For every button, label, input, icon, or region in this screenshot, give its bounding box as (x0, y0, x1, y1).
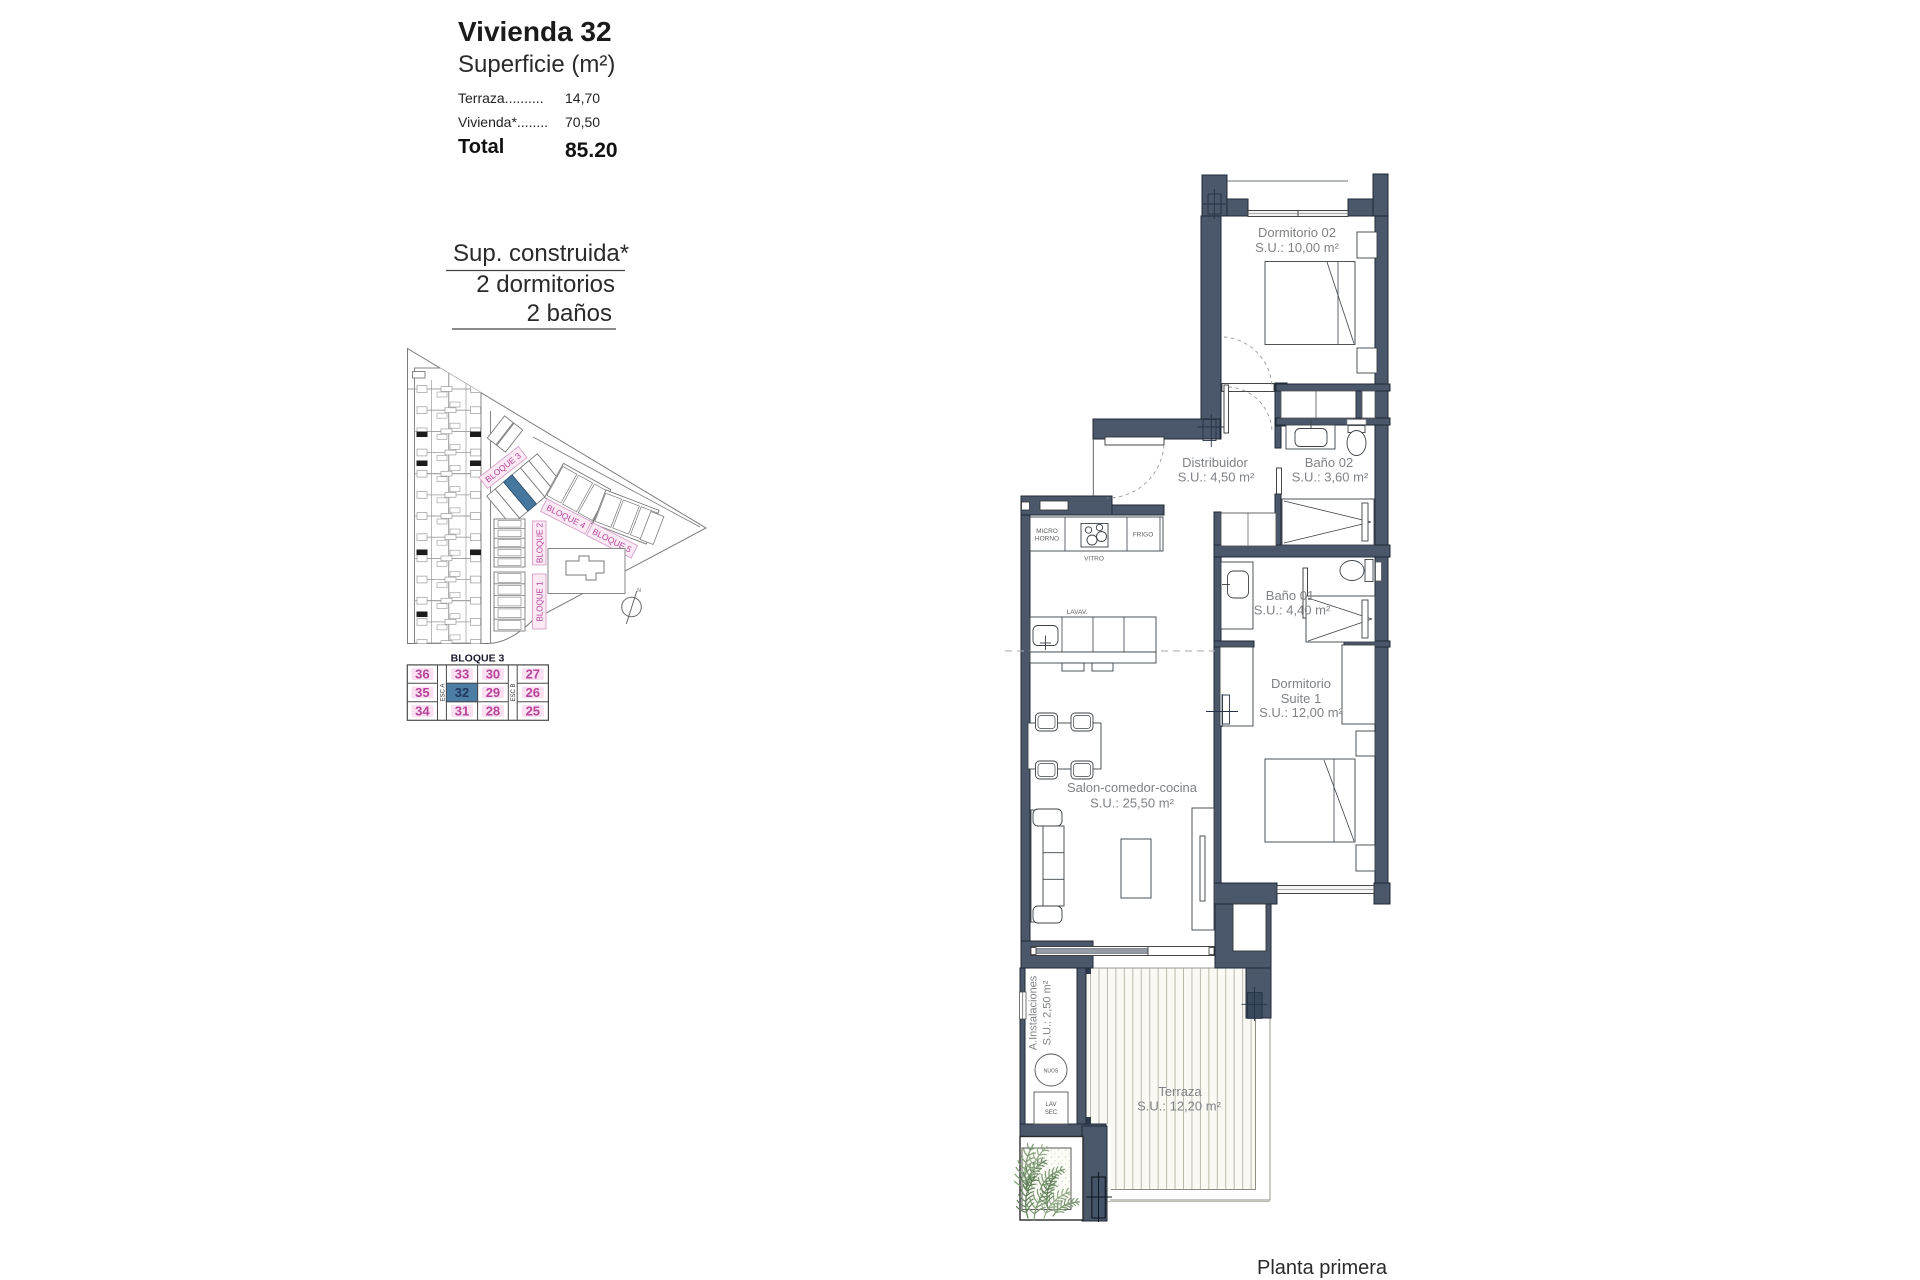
svg-text:BLOQUE 1: BLOQUE 1 (536, 581, 545, 622)
svg-text:S.U.: 4,50 m²: S.U.: 4,50 m² (1178, 470, 1255, 485)
svg-text:VITRO: VITRO (1084, 556, 1104, 563)
svg-text:BLOQUE 3: BLOQUE 3 (451, 653, 505, 665)
svg-text:Total: Total (458, 136, 504, 158)
svg-text:34: 34 (415, 704, 430, 719)
svg-text:33: 33 (455, 667, 469, 682)
svg-text:35: 35 (415, 685, 429, 700)
svg-text:Baño 01: Baño 01 (1266, 588, 1314, 603)
svg-text:28: 28 (486, 704, 500, 719)
svg-text:ESC B: ESC B (511, 683, 517, 701)
svg-text:30: 30 (486, 667, 500, 682)
svg-text:31: 31 (455, 704, 469, 719)
svg-text:NUOS: NUOS (1044, 1069, 1059, 1075)
svg-text:26: 26 (526, 685, 540, 700)
svg-text:Terraza..........: Terraza.......... (458, 90, 544, 106)
svg-text:85.20: 85.20 (565, 139, 618, 162)
svg-text:S.U.: 2,50 m²: S.U.: 2,50 m² (1042, 980, 1054, 1045)
svg-text:Superficie (m²): Superficie (m²) (458, 51, 615, 78)
svg-text:2 baños: 2 baños (527, 300, 612, 327)
svg-text:Sup. construida*: Sup. construida* (453, 240, 629, 267)
svg-text:Dormitorio 02: Dormitorio 02 (1258, 225, 1336, 240)
svg-text:FRIGO: FRIGO (1133, 532, 1154, 539)
svg-text:70,50: 70,50 (565, 114, 600, 130)
svg-text:BLOQUE 2: BLOQUE 2 (536, 522, 545, 563)
svg-text:Planta primera: Planta primera (1257, 1257, 1388, 1279)
svg-text:S.U.: 4,40 m²: S.U.: 4,40 m² (1254, 603, 1331, 618)
svg-text:S.U.: 12,20 m²: S.U.: 12,20 m² (1137, 1099, 1221, 1114)
svg-text:S.U.: 25,50 m²: S.U.: 25,50 m² (1090, 796, 1174, 811)
svg-text:S.U.: 3,60 m²: S.U.: 3,60 m² (1292, 470, 1369, 485)
svg-text:29: 29 (486, 685, 500, 700)
svg-text:27: 27 (526, 667, 540, 682)
svg-text:S.U.: 12,00 m²: S.U.: 12,00 m² (1259, 705, 1343, 720)
svg-text:25: 25 (526, 704, 540, 719)
svg-text:Vivienda*........: Vivienda*........ (458, 114, 548, 130)
svg-text:Vivienda 32: Vivienda 32 (458, 16, 612, 47)
svg-text:Suite 1: Suite 1 (1281, 691, 1321, 706)
svg-text:MICRO: MICRO (1036, 528, 1058, 535)
svg-text:N: N (637, 588, 641, 594)
svg-text:LAV: LAV (1046, 1102, 1057, 1108)
svg-text:Dormitorio: Dormitorio (1271, 676, 1331, 691)
svg-text:A.Instalaciones: A.Instalaciones (1028, 975, 1040, 1050)
svg-text:LAVAV.: LAVAV. (1067, 609, 1088, 616)
svg-text:SEC: SEC (1045, 1110, 1058, 1116)
svg-text:S.U.: 10,00 m²: S.U.: 10,00 m² (1255, 240, 1339, 255)
svg-text:HORNO: HORNO (1035, 536, 1059, 543)
svg-text:2 dormitorios: 2 dormitorios (476, 271, 615, 298)
svg-text:14,70: 14,70 (565, 90, 600, 106)
svg-text:36: 36 (415, 667, 429, 682)
svg-text:Salon-comedor-cocina: Salon-comedor-cocina (1067, 780, 1198, 795)
svg-text:Terraza: Terraza (1158, 1084, 1202, 1099)
svg-text:32: 32 (455, 685, 469, 700)
svg-text:Baño 02: Baño 02 (1305, 455, 1353, 470)
svg-text:ESC A: ESC A (441, 684, 447, 702)
svg-text:Distribuidor: Distribuidor (1182, 455, 1248, 470)
